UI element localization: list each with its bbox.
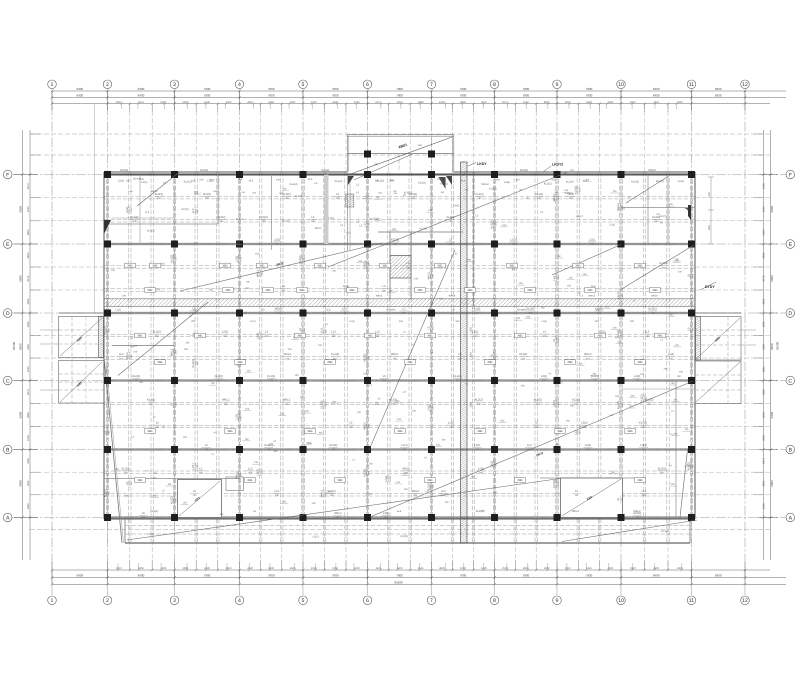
svg-text:9: 9 xyxy=(556,598,559,604)
svg-text:L1(1): L1(1) xyxy=(448,422,454,425)
svg-text:12: 12 xyxy=(742,598,748,604)
svg-text:E: E xyxy=(789,242,793,248)
svg-text:6: 6 xyxy=(366,598,369,604)
svg-text:WKL2: WKL2 xyxy=(482,183,490,186)
svg-text:2600: 2600 xyxy=(204,567,210,570)
svg-text:7800: 7800 xyxy=(268,87,275,91)
svg-text:240: 240 xyxy=(516,178,521,181)
svg-text:XB1: XB1 xyxy=(627,429,633,433)
svg-text:2850: 2850 xyxy=(27,321,30,327)
svg-text:L3: L3 xyxy=(311,216,314,219)
svg-text:LKDY: LKDY xyxy=(477,162,487,166)
svg-text:L1(1): L1(1) xyxy=(553,400,556,406)
svg-text:7800: 7800 xyxy=(396,87,403,91)
svg-text:2850: 2850 xyxy=(116,101,122,104)
svg-text:KL2(2): KL2(2) xyxy=(215,375,223,378)
svg-text:XB1: XB1 xyxy=(137,478,143,482)
svg-text:L2(2): L2(2) xyxy=(148,533,154,536)
svg-text:KL1(2): KL1(2) xyxy=(130,216,138,219)
svg-text:KL3(2): KL3(2) xyxy=(217,216,225,219)
svg-text:KL2(2): KL2(2) xyxy=(192,359,195,367)
svg-text:1500: 1500 xyxy=(470,402,473,408)
svg-text:XB1: XB1 xyxy=(152,264,158,268)
svg-text:KL6: KL6 xyxy=(238,178,243,181)
svg-text:KL2(2): KL2(2) xyxy=(200,169,208,172)
svg-text:L2(2): L2(2) xyxy=(385,476,388,482)
svg-text:L5: L5 xyxy=(142,512,145,515)
svg-text:L3: L3 xyxy=(543,331,546,334)
svg-text:35600: 35600 xyxy=(12,341,16,350)
svg-text:WKL2: WKL2 xyxy=(315,227,322,230)
svg-text:4: 4 xyxy=(238,82,241,88)
svg-text:WKL2: WKL2 xyxy=(391,353,399,356)
svg-text:L1(1): L1(1) xyxy=(192,463,195,469)
svg-text:L3: L3 xyxy=(199,467,202,470)
svg-text:11: 11 xyxy=(689,82,694,88)
svg-text:B: B xyxy=(789,447,793,453)
svg-text:XB1: XB1 xyxy=(317,264,323,268)
svg-text:KL3(2): KL3(2) xyxy=(519,353,527,356)
svg-text:L1(1): L1(1) xyxy=(504,181,510,184)
svg-text:2600: 2600 xyxy=(27,343,30,349)
svg-text:8: 8 xyxy=(493,598,496,604)
svg-text:8400: 8400 xyxy=(138,87,145,91)
svg-text:6575: 6575 xyxy=(27,389,30,395)
svg-text:240: 240 xyxy=(399,320,404,323)
svg-text:L2(2): L2(2) xyxy=(490,461,493,467)
svg-text:XB1: XB1 xyxy=(327,360,333,364)
svg-text:1050: 1050 xyxy=(565,567,571,570)
svg-text:1600: 1600 xyxy=(481,567,487,570)
svg-text:XB1: XB1 xyxy=(157,360,163,364)
svg-text:7800: 7800 xyxy=(460,574,467,578)
svg-text:6900: 6900 xyxy=(76,94,83,98)
svg-text:KL2(2): KL2(2) xyxy=(153,331,161,334)
svg-text:KL3(2): KL3(2) xyxy=(553,480,556,488)
svg-text:KL3(2): KL3(2) xyxy=(329,444,337,447)
svg-text:7800: 7800 xyxy=(268,94,275,98)
svg-text:KL3(2): KL3(2) xyxy=(150,510,158,513)
svg-text:LL3: LL3 xyxy=(331,331,336,334)
svg-text:L2(2): L2(2) xyxy=(581,422,587,425)
svg-text:6900: 6900 xyxy=(715,574,722,578)
svg-text:240: 240 xyxy=(596,309,601,312)
svg-text:KL3(2): KL3(2) xyxy=(170,255,173,263)
svg-text:XB1: XB1 xyxy=(597,334,603,338)
svg-text:240: 240 xyxy=(276,179,281,182)
svg-text:7800: 7800 xyxy=(332,574,339,578)
svg-text:2400: 2400 xyxy=(763,229,766,235)
svg-text:LL3: LL3 xyxy=(375,331,380,334)
svg-text:7800: 7800 xyxy=(586,94,593,98)
svg-text:2500: 2500 xyxy=(763,503,766,509)
svg-text:1125: 1125 xyxy=(311,101,317,104)
svg-text:XB1: XB1 xyxy=(337,478,343,482)
svg-text:LL3: LL3 xyxy=(347,231,352,234)
svg-text:7800: 7800 xyxy=(522,87,529,91)
svg-text:180: 180 xyxy=(418,144,423,147)
svg-text:L1(1): L1(1) xyxy=(474,444,480,447)
svg-text:KL1(2): KL1(2) xyxy=(267,375,275,378)
svg-text:5: 5 xyxy=(302,598,305,604)
svg-text:XB1: XB1 xyxy=(407,360,413,364)
svg-text:2400: 2400 xyxy=(763,206,766,212)
svg-text:L5: L5 xyxy=(553,338,556,341)
svg-text:XB1: XB1 xyxy=(467,288,473,292)
svg-text:L2(2): L2(2) xyxy=(222,331,228,334)
svg-text:XB1: XB1 xyxy=(637,264,643,268)
svg-text:2850: 2850 xyxy=(27,412,30,418)
svg-text:WKL2: WKL2 xyxy=(257,269,260,277)
svg-text:XB1: XB1 xyxy=(307,429,313,433)
svg-text:XB1: XB1 xyxy=(509,264,515,268)
svg-text:KL6: KL6 xyxy=(461,180,466,183)
svg-text:L2(2): L2(2) xyxy=(118,180,124,183)
svg-text:XB1: XB1 xyxy=(517,478,523,482)
svg-text:XB1: XB1 xyxy=(417,288,423,292)
svg-text:L1(1): L1(1) xyxy=(472,331,478,334)
svg-text:L2(2): L2(2) xyxy=(126,207,129,213)
svg-text:1050: 1050 xyxy=(565,101,571,104)
svg-text:5: 5 xyxy=(302,82,305,88)
svg-text:XB1: XB1 xyxy=(587,288,593,292)
svg-text:1125: 1125 xyxy=(354,101,360,104)
svg-text:6900: 6900 xyxy=(715,87,722,91)
svg-text:XB1: XB1 xyxy=(297,334,303,338)
svg-text:150: 150 xyxy=(126,180,131,183)
svg-text:KL6: KL6 xyxy=(249,179,254,182)
svg-text:C: C xyxy=(788,378,792,384)
svg-text:L2(2): L2(2) xyxy=(478,467,484,470)
svg-text:XB1: XB1 xyxy=(427,478,433,482)
svg-text:WKL2: WKL2 xyxy=(427,272,430,280)
svg-text:D: D xyxy=(6,311,10,317)
svg-text:WKL6: WKL6 xyxy=(449,295,456,298)
svg-text:300x600: 300x600 xyxy=(517,309,527,312)
svg-text:WKL2: WKL2 xyxy=(363,422,366,430)
svg-text:1500: 1500 xyxy=(27,480,30,486)
svg-text:2600: 2600 xyxy=(630,101,636,104)
svg-text:240: 240 xyxy=(375,180,380,183)
svg-text:2500: 2500 xyxy=(630,567,636,570)
svg-text:L5: L5 xyxy=(383,375,386,378)
svg-text:3: 3 xyxy=(173,82,176,88)
svg-text:1125: 1125 xyxy=(586,567,592,570)
svg-text:WKL2: WKL2 xyxy=(412,490,420,493)
svg-text:WKL2: WKL2 xyxy=(617,203,620,211)
svg-text:9: 9 xyxy=(556,82,559,88)
svg-text:1050: 1050 xyxy=(27,366,30,372)
svg-text:L1(1): L1(1) xyxy=(141,181,147,184)
svg-text:2600: 2600 xyxy=(247,567,253,570)
svg-text:WKL2: WKL2 xyxy=(170,348,173,356)
svg-text:WKL2: WKL2 xyxy=(275,308,283,311)
svg-text:200: 200 xyxy=(191,320,196,323)
svg-text:L1(1): L1(1) xyxy=(401,444,407,447)
svg-text:KL3(2): KL3(2) xyxy=(648,308,656,311)
svg-text:KL5(2): KL5(2) xyxy=(534,399,542,402)
svg-text:7800: 7800 xyxy=(204,94,211,98)
svg-text:KL5(2): KL5(2) xyxy=(236,218,244,221)
svg-text:KL1(2): KL1(2) xyxy=(331,353,339,356)
svg-text:KL2(2): KL2(2) xyxy=(446,216,454,219)
svg-text:WKL2: WKL2 xyxy=(648,169,656,172)
svg-text:L1(1): L1(1) xyxy=(193,309,199,312)
svg-text:2500: 2500 xyxy=(226,101,232,104)
svg-text:1600: 1600 xyxy=(607,101,613,104)
svg-text:6900: 6900 xyxy=(19,206,23,213)
svg-text:3800: 3800 xyxy=(27,229,30,235)
svg-text:3850: 3850 xyxy=(544,101,550,104)
svg-text:KL1(2): KL1(2) xyxy=(103,489,106,497)
svg-text:6900: 6900 xyxy=(76,87,83,91)
svg-text:XB1: XB1 xyxy=(477,429,483,433)
svg-text:XB1: XB1 xyxy=(127,264,133,268)
svg-text:A: A xyxy=(6,515,10,521)
svg-text:WKL2: WKL2 xyxy=(402,467,410,470)
svg-text:2500: 2500 xyxy=(502,567,508,570)
svg-text:2600: 2600 xyxy=(677,101,683,104)
svg-text:L5: L5 xyxy=(193,490,196,493)
svg-text:KL2(2): KL2(2) xyxy=(370,218,378,221)
svg-text:KL1(2): KL1(2) xyxy=(282,220,290,223)
svg-text:2400: 2400 xyxy=(763,343,766,349)
svg-text:L1(1): L1(1) xyxy=(235,414,238,420)
svg-text:L5: L5 xyxy=(459,353,462,356)
svg-text:XB1: XB1 xyxy=(147,429,153,433)
svg-text:LL3: LL3 xyxy=(645,331,650,334)
svg-text:L2(2): L2(2) xyxy=(257,469,260,475)
svg-text:KL5(2): KL5(2) xyxy=(120,169,128,172)
svg-text:85200: 85200 xyxy=(394,581,403,585)
svg-text:L2(2): L2(2) xyxy=(585,444,591,447)
svg-text:L3: L3 xyxy=(449,239,452,242)
svg-text:WKL2: WKL2 xyxy=(584,353,592,356)
svg-text:C: C xyxy=(6,378,10,384)
svg-text:L5: L5 xyxy=(687,327,690,330)
svg-text:L5: L5 xyxy=(349,422,352,425)
svg-text:L2(2): L2(2) xyxy=(383,512,389,515)
svg-text:WKL2: WKL2 xyxy=(572,510,580,513)
svg-text:LL3: LL3 xyxy=(248,467,253,470)
svg-text:L1(1): L1(1) xyxy=(321,328,324,334)
svg-text:LL3: LL3 xyxy=(145,211,150,214)
svg-text:7800: 7800 xyxy=(522,574,529,578)
svg-text:3: 3 xyxy=(173,598,176,604)
svg-text:35600: 35600 xyxy=(776,341,780,350)
svg-text:1050: 1050 xyxy=(523,101,529,104)
svg-text:2500: 2500 xyxy=(226,567,232,570)
svg-text:XB1: XB1 xyxy=(222,264,228,268)
svg-text:L3: L3 xyxy=(402,308,405,311)
svg-text:KL2(2): KL2(2) xyxy=(660,262,668,265)
svg-text:WKL2: WKL2 xyxy=(235,471,238,479)
svg-text:LL3: LL3 xyxy=(397,510,402,513)
svg-text:7: 7 xyxy=(430,598,433,604)
svg-text:150: 150 xyxy=(133,178,138,181)
svg-text:7800: 7800 xyxy=(460,94,467,98)
svg-text:KL5(2): KL5(2) xyxy=(639,422,647,425)
svg-text:KL3(2): KL3(2) xyxy=(440,183,448,186)
svg-text:1125: 1125 xyxy=(418,567,424,570)
svg-text:LL3: LL3 xyxy=(342,308,347,311)
svg-text:A: A xyxy=(789,515,793,521)
svg-text:L1(1): L1(1) xyxy=(678,180,684,183)
svg-text:XB1: XB1 xyxy=(299,288,305,292)
svg-text:1050: 1050 xyxy=(268,101,274,104)
svg-text:2600: 2600 xyxy=(763,298,766,304)
svg-text:7800: 7800 xyxy=(396,94,403,98)
svg-text:6575: 6575 xyxy=(138,101,144,104)
svg-text:XB1: XB1 xyxy=(367,334,373,338)
svg-text:LL3: LL3 xyxy=(553,275,556,280)
svg-text:KL1(2): KL1(2) xyxy=(453,375,461,378)
svg-text:L3: L3 xyxy=(103,431,106,434)
svg-text:240: 240 xyxy=(261,309,266,312)
svg-text:7800: 7800 xyxy=(586,87,593,91)
svg-text:WKL6: WKL6 xyxy=(376,295,383,298)
svg-text:L5: L5 xyxy=(363,223,366,226)
svg-text:L2(2): L2(2) xyxy=(257,333,260,339)
svg-text:KL5(2): KL5(2) xyxy=(299,255,302,263)
svg-text:2600: 2600 xyxy=(27,298,30,304)
svg-text:XB1: XB1 xyxy=(247,478,253,482)
svg-text:L1(1): L1(1) xyxy=(542,320,548,323)
svg-text:2600: 2600 xyxy=(763,252,766,258)
svg-text:WKL2: WKL2 xyxy=(334,512,342,515)
svg-text:L2(2): L2(2) xyxy=(274,239,280,242)
svg-text:1050: 1050 xyxy=(27,206,30,212)
svg-text:KL5(2): KL5(2) xyxy=(401,535,409,538)
svg-text:D: D xyxy=(788,311,792,317)
svg-text:2400: 2400 xyxy=(653,567,659,570)
svg-text:KL3(2): KL3(2) xyxy=(662,530,670,533)
svg-text:6900: 6900 xyxy=(19,275,23,282)
svg-text:XB1: XB1 xyxy=(657,334,663,338)
svg-text:1125: 1125 xyxy=(653,101,659,104)
svg-text:7800: 7800 xyxy=(332,87,339,91)
svg-text:150: 150 xyxy=(140,178,145,181)
svg-text:XB1: XB1 xyxy=(567,360,573,364)
svg-text:B: B xyxy=(6,447,10,453)
svg-text:L1(1): L1(1) xyxy=(589,239,595,242)
svg-text:2000: 2000 xyxy=(763,412,766,418)
svg-text:L3: L3 xyxy=(383,285,386,288)
svg-text:1050: 1050 xyxy=(397,101,403,104)
svg-text:180: 180 xyxy=(374,163,379,166)
svg-text:KL5(2): KL5(2) xyxy=(363,261,366,269)
svg-text:L3: L3 xyxy=(336,193,339,196)
svg-text:KL3(2): KL3(2) xyxy=(122,467,130,470)
svg-text:KL2(2): KL2(2) xyxy=(659,215,667,218)
svg-text:KL1(2): KL1(2) xyxy=(535,193,543,196)
svg-text:L2(2): L2(2) xyxy=(427,483,430,489)
svg-text:6900: 6900 xyxy=(715,94,722,98)
svg-text:2850: 2850 xyxy=(523,567,529,570)
svg-text:KL6: KL6 xyxy=(442,179,447,182)
svg-text:L3: L3 xyxy=(427,326,430,329)
svg-text:KL2(2): KL2(2) xyxy=(418,182,426,185)
svg-text:L3: L3 xyxy=(205,444,208,447)
svg-text:2600: 2600 xyxy=(354,567,360,570)
svg-text:WKL2: WKL2 xyxy=(553,194,556,202)
svg-text:L5: L5 xyxy=(687,274,690,277)
svg-text:150: 150 xyxy=(390,180,395,183)
svg-text:6575: 6575 xyxy=(502,101,508,104)
svg-text:2850: 2850 xyxy=(763,435,766,441)
svg-text:10: 10 xyxy=(618,598,624,604)
svg-text:XB1: XB1 xyxy=(237,360,243,364)
svg-text:1800: 1800 xyxy=(470,352,473,358)
svg-text:KL5(2): KL5(2) xyxy=(658,467,666,470)
svg-text:KL5(2): KL5(2) xyxy=(656,180,664,183)
svg-text:KL2(2): KL2(2) xyxy=(147,229,155,232)
svg-text:8400: 8400 xyxy=(653,94,660,98)
svg-text:6900: 6900 xyxy=(770,275,774,282)
svg-text:KL1(2): KL1(2) xyxy=(475,193,483,196)
svg-text:1050: 1050 xyxy=(311,567,317,570)
svg-text:2600: 2600 xyxy=(27,457,30,463)
svg-text:WKL6: WKL6 xyxy=(589,295,596,298)
svg-text:7800: 7800 xyxy=(522,94,529,98)
svg-text:L3: L3 xyxy=(299,328,302,331)
svg-text:6900: 6900 xyxy=(770,206,774,213)
svg-text:KL1(2): KL1(2) xyxy=(489,187,497,190)
svg-text:3800: 3800 xyxy=(182,567,188,570)
svg-text:XB1: XB1 xyxy=(259,264,265,268)
svg-text:L2(2): L2(2) xyxy=(313,536,319,539)
svg-text:XB1: XB1 xyxy=(517,334,523,338)
svg-text:L1(1): L1(1) xyxy=(617,292,620,298)
svg-text:1000: 1000 xyxy=(544,567,550,570)
svg-text:1125: 1125 xyxy=(375,567,381,570)
svg-text:6575: 6575 xyxy=(27,275,30,281)
svg-text:XB1: XB1 xyxy=(382,264,388,268)
svg-text:KL3(2): KL3(2) xyxy=(321,400,324,408)
svg-text:WKL2: WKL2 xyxy=(576,215,583,218)
svg-text:LKDY2: LKDY2 xyxy=(552,163,563,167)
svg-text:KL5(2): KL5(2) xyxy=(283,193,291,196)
svg-text:2600: 2600 xyxy=(160,101,166,104)
svg-text:240: 240 xyxy=(451,309,456,312)
svg-text:L5: L5 xyxy=(126,481,129,484)
svg-text:2: 2 xyxy=(106,598,109,604)
svg-text:6900: 6900 xyxy=(76,574,83,578)
svg-text:LL3: LL3 xyxy=(275,490,280,493)
svg-text:1600: 1600 xyxy=(204,101,210,104)
svg-text:7800: 7800 xyxy=(460,87,467,91)
svg-text:2000: 2000 xyxy=(763,183,766,189)
svg-text:WKL2: WKL2 xyxy=(321,489,324,497)
svg-text:L3: L3 xyxy=(406,262,409,265)
svg-text:L5: L5 xyxy=(617,497,620,500)
svg-text:8400: 8400 xyxy=(653,87,660,91)
svg-text:6575: 6575 xyxy=(27,183,30,189)
svg-text:KL1(2): KL1(2) xyxy=(295,195,303,198)
svg-text:4: 4 xyxy=(238,598,241,604)
svg-text:3800: 3800 xyxy=(439,567,445,570)
svg-text:L2(2): L2(2) xyxy=(427,405,430,411)
svg-text:6900: 6900 xyxy=(19,343,23,350)
svg-text:3800: 3800 xyxy=(27,252,30,258)
svg-text:7: 7 xyxy=(430,82,433,88)
svg-text:6575: 6575 xyxy=(481,101,487,104)
svg-text:1050: 1050 xyxy=(27,435,30,441)
svg-text:XB1: XB1 xyxy=(147,288,153,292)
svg-text:7800: 7800 xyxy=(332,94,339,98)
svg-text:KL1(2): KL1(2) xyxy=(526,308,534,311)
svg-text:L1(1): L1(1) xyxy=(115,309,121,312)
